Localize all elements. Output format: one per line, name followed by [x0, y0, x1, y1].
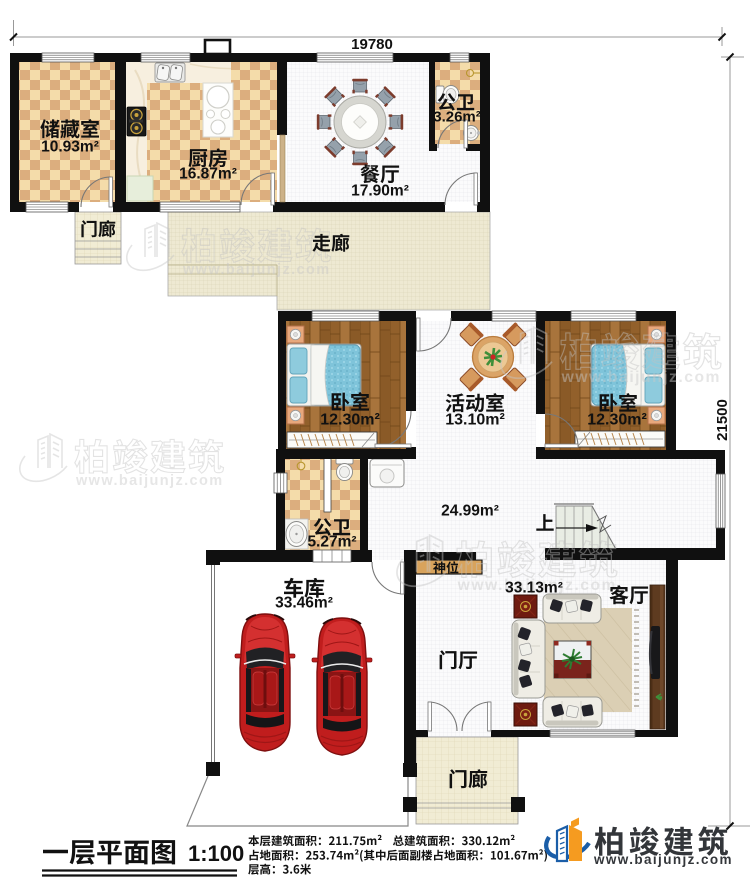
svg-text:13.10m²: 13.10m² [445, 412, 505, 429]
svg-text:12.30m²: 12.30m² [320, 412, 380, 429]
svg-text:12.30m²: 12.30m² [587, 412, 647, 429]
svg-text:www.baijunjz.com: www.baijunjz.com [593, 852, 733, 867]
svg-text:16.87m²: 16.87m² [179, 166, 237, 183]
svg-text:www.baijunjz.com: www.baijunjz.com [182, 262, 331, 278]
svg-text:33.46m²: 33.46m² [275, 595, 333, 612]
svg-text:www.baijunjz.com: www.baijunjz.com [75, 473, 224, 489]
svg-text:17.90m²: 17.90m² [351, 183, 409, 200]
svg-text:3.26m²: 3.26m² [433, 109, 481, 126]
svg-text:21500: 21500 [714, 399, 731, 441]
svg-text:10.93m²: 10.93m² [41, 139, 99, 156]
svg-text:www.baijunjz.com: www.baijunjz.com [561, 369, 721, 386]
svg-text:33.13m²: 33.13m² [505, 580, 563, 597]
svg-text:24.99m²: 24.99m² [441, 503, 499, 520]
svg-text:5.27m²: 5.27m² [307, 534, 356, 551]
svg-text:19780: 19780 [351, 36, 393, 53]
svg-text:1:100: 1:100 [188, 841, 244, 866]
